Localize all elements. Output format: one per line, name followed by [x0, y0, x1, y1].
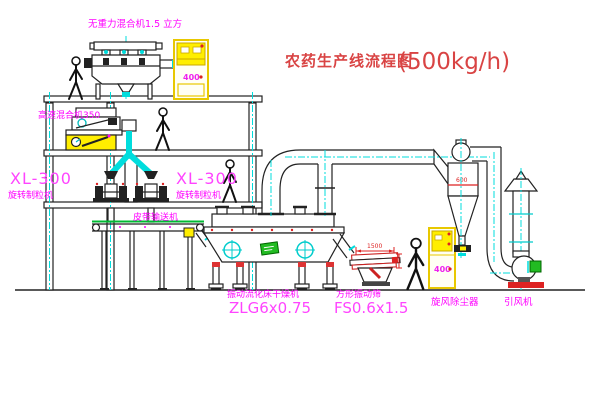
cabinet-indicator-light	[200, 44, 203, 47]
label-high-speed-mixer: 高速混合机350	[38, 109, 100, 121]
label-granulator-left-name: 旋转制粒机	[8, 189, 53, 201]
granulator-right	[133, 183, 169, 202]
fluid-bed-dryer	[204, 207, 355, 290]
fan-motor	[530, 261, 541, 272]
person-figure-2	[156, 108, 169, 150]
label-fan: 引风机	[504, 296, 533, 308]
granulator-left	[93, 183, 129, 202]
dryer-spring-supports	[209, 262, 337, 290]
label-gravity-mixer: 无重力混合机1.5 立方	[88, 18, 182, 30]
label-granulator-left-model: XL-300	[10, 169, 72, 188]
label-cyclone: 旋风除尘器	[431, 296, 479, 308]
cabinet-top-label: 400	[183, 73, 200, 82]
label-dryer-model: ZLG6x0.75	[229, 299, 311, 317]
gravity-mixer	[84, 42, 176, 99]
cyclone-rotary-valve	[454, 245, 471, 256]
cyclone-dia-label: 600	[456, 177, 468, 184]
screen-width-label: 1500	[367, 243, 382, 250]
control-cabinet-top: 400	[174, 40, 208, 99]
label-granulator-mid-model: XL-300	[176, 169, 238, 188]
person-figure-4	[408, 239, 424, 289]
diagram-capacity: (500kg/h)	[398, 49, 510, 75]
dryer-nameplate	[260, 242, 278, 255]
induced-draft-fan	[508, 251, 544, 288]
person-figure-1	[69, 57, 82, 99]
process-flow-diagram: 400	[0, 0, 600, 403]
fan-base	[508, 282, 544, 288]
label-screen-model: FS0.6x1.5	[334, 299, 408, 317]
label-granulator-mid-name: 旋转制粒机	[176, 189, 221, 201]
label-belt-conveyor: 皮带输送机	[133, 211, 178, 223]
square-screen: 1500	[350, 243, 402, 286]
diagram-canvas: 400	[0, 0, 600, 403]
diagram-title: 农药生产线流程图	[284, 52, 413, 70]
control-cabinet-right: 400	[429, 228, 455, 288]
mixer-feed-valves	[102, 50, 146, 55]
